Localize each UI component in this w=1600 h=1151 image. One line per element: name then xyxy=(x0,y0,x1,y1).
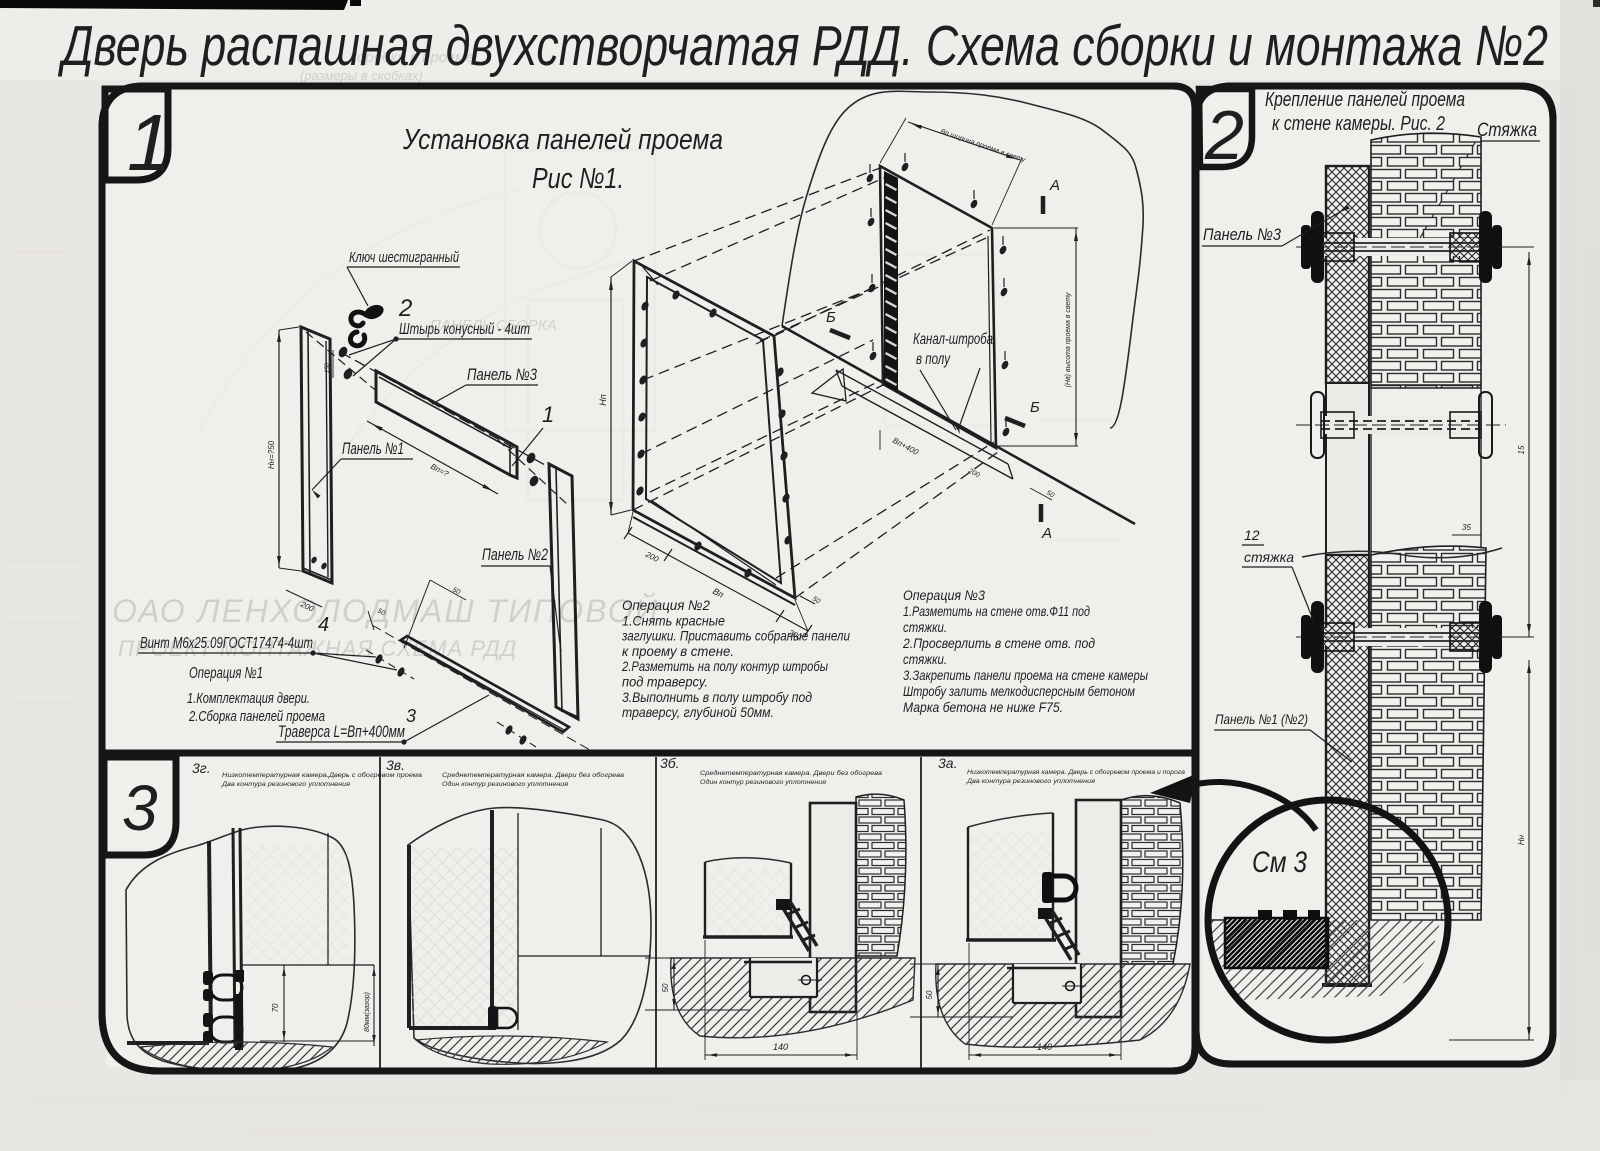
svg-text:3а.: 3а. xyxy=(938,755,957,771)
svg-text:См 3: См 3 xyxy=(1252,846,1307,879)
svg-text:Б: Б xyxy=(826,309,836,326)
svg-text:1.Снять красные: 1.Снять красные xyxy=(622,612,725,628)
svg-text:к стене камеры. Рис. 2: к стене камеры. Рис. 2 xyxy=(1272,113,1445,135)
svg-text:Нп: Нп xyxy=(598,394,608,405)
svg-text:70: 70 xyxy=(271,1003,280,1012)
svg-text:4: 4 xyxy=(318,614,329,636)
svg-text:Один контур резинового уплотне: Один контур резинового уплотнения xyxy=(442,780,569,788)
svg-text:3в.: 3в. xyxy=(386,757,405,773)
svg-text:2.Просверлить в стене отв.: 2.Просверлить в стене отв. под xyxy=(902,635,1095,651)
svg-text:2: 2 xyxy=(1204,96,1244,174)
svg-text:Нн=?50: Нн=?50 xyxy=(267,440,276,469)
svg-text:Марка бетона не ниже F75.: Марка бетона не ниже F75. xyxy=(903,699,1063,715)
svg-text:А: А xyxy=(1041,525,1052,542)
svg-text:1.Комплектация двери.: 1.Комплектация двери. xyxy=(187,690,310,707)
svg-text:(Нв) высота проема в свету: (Нв) высота проема в свету xyxy=(1065,292,1072,387)
svg-text:к проему в стене.: к проему в стене. xyxy=(622,643,734,659)
svg-text:2.Разметить на полу контур штр: 2.Разметить на полу контур штробы xyxy=(621,658,828,674)
svg-text:Среднетемпературная камера. Дв: Среднетемпературная камера. Двери без об… xyxy=(442,771,624,779)
svg-text:Нн: Нн xyxy=(1517,834,1526,845)
svg-text:Операция №1: Операция №1 xyxy=(189,665,263,682)
svg-text:Винт М6х25.09ГОСТ17474-4шт: Винт М6х25.09ГОСТ17474-4шт xyxy=(140,635,313,652)
svg-text:50: 50 xyxy=(661,983,670,992)
svg-text:Панель №1 (№2): Панель №1 (№2) xyxy=(1215,711,1308,727)
svg-text:2: 2 xyxy=(398,295,412,322)
svg-text:в полу: в полу xyxy=(916,351,951,368)
svg-text:Операция №2: Операция №2 xyxy=(622,597,710,613)
svg-text:Панель №3: Панель №3 xyxy=(1203,225,1281,244)
svg-text:1: 1 xyxy=(542,402,554,427)
svg-text:Дверь распашная двухстворчатая: Дверь распашная двухстворчатая РДД. Схем… xyxy=(57,14,1548,78)
svg-text:стяжки.: стяжки. xyxy=(903,651,947,667)
svg-text:1: 1 xyxy=(127,98,172,187)
svg-text:3.Выполнить в полу штробу под: 3.Выполнить в полу штробу под xyxy=(622,689,812,705)
svg-text:Штырь конусный - 4шт: Штырь конусный - 4шт xyxy=(399,321,530,338)
svg-text:Стяжка: Стяжка xyxy=(1477,120,1537,141)
svg-text:Штробу залить мелкодисперсным: Штробу залить мелкодисперсным бетоном xyxy=(903,683,1135,699)
svg-text:15: 15 xyxy=(1517,445,1526,454)
svg-text:3г.: 3г. xyxy=(192,760,211,776)
svg-text:3: 3 xyxy=(122,772,158,844)
svg-text:150: 150 xyxy=(325,362,331,373)
svg-text:80мм(зазор): 80мм(зазор) xyxy=(364,992,371,1032)
svg-text:3.Закрепить панели проема на с: 3.Закрепить панели проема на стене камер… xyxy=(903,667,1149,683)
svg-text:Два контура резинового уплотне: Два контура резинового уплотнения xyxy=(221,781,351,788)
svg-text:А: А xyxy=(1049,177,1060,194)
svg-text:Операция №3: Операция №3 xyxy=(903,587,985,603)
svg-text:3б.: 3б. xyxy=(660,755,680,771)
svg-text:Установка панелей проема: Установка панелей проема xyxy=(402,124,723,156)
svg-text:заглушки. Приставить собраные: заглушки. Приставить собраные панели xyxy=(621,628,850,644)
svg-text:35: 35 xyxy=(1462,523,1471,532)
svg-text:Один контур резинового уплотне: Один контур резинового уплотнения xyxy=(700,778,827,786)
svg-text:1.Разметить на стене отв.Ф11 п: 1.Разметить на стене отв.Ф11 под xyxy=(903,603,1090,619)
svg-text:3: 3 xyxy=(406,706,416,726)
svg-text:Рис №1.: Рис №1. xyxy=(532,163,624,195)
svg-text:Канал-штроба: Канал-штроба xyxy=(913,331,993,348)
svg-text:Панель №3: Панель №3 xyxy=(467,366,538,384)
svg-text:стяжки.: стяжки. xyxy=(903,619,947,635)
svg-text:Низкотемпературная камера. Две: Низкотемпературная камера. Дверь с обогр… xyxy=(967,768,1185,776)
svg-text:Два контура резинового уплотне: Два контура резинового уплотнения xyxy=(966,778,1096,785)
svg-text:Панель №1: Панель №1 xyxy=(342,440,404,458)
svg-text:Среднетемпературная камера. Дв: Среднетемпературная камера. Двери без об… xyxy=(700,769,882,777)
svg-text:Крепление панелей проема: Крепление панелей проема xyxy=(1265,89,1465,111)
svg-text:Траверса L=Вп+400мм: Траверса L=Вп+400мм xyxy=(278,723,405,741)
svg-text:50: 50 xyxy=(925,990,934,999)
svg-text:Панель №2: Панель №2 xyxy=(482,546,548,564)
svg-text:стяжка: стяжка xyxy=(1244,549,1294,565)
svg-text:траверсу, глубиной 50мм.: траверсу, глубиной 50мм. xyxy=(622,704,774,720)
svg-text:140: 140 xyxy=(1037,1042,1052,1052)
svg-text:140: 140 xyxy=(773,1042,788,1052)
svg-text:Б: Б xyxy=(1030,399,1040,416)
svg-text:12: 12 xyxy=(1244,527,1260,543)
svg-text:под траверсу.: под траверсу. xyxy=(622,674,708,690)
svg-text:Ключ шестигранный: Ключ шестигранный xyxy=(349,249,459,266)
